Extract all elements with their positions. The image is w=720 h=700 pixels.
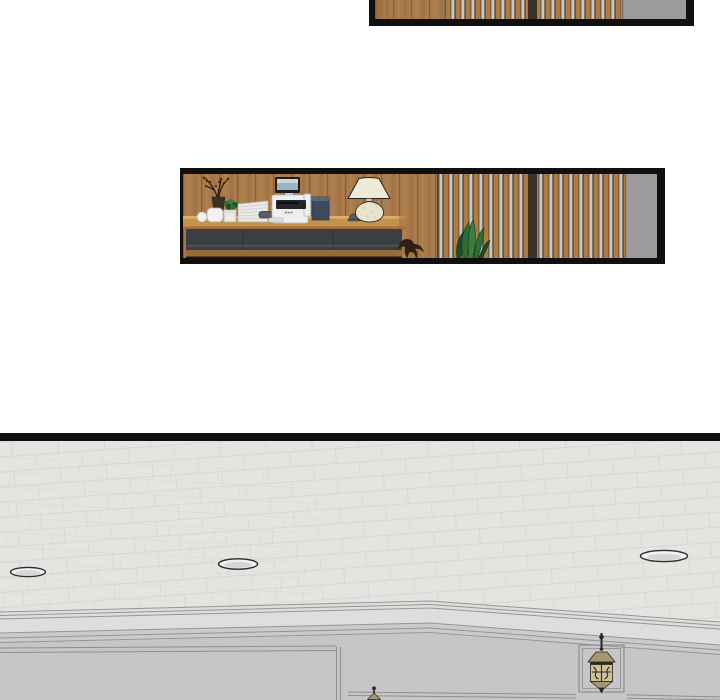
divider-post: [528, 174, 537, 258]
wood-wall: [375, 0, 444, 19]
top-strip-art: [375, 0, 686, 19]
stapler: [259, 212, 272, 219]
navy-box: [312, 197, 329, 220]
recessed-light: [11, 567, 46, 576]
reception-desk-art: [183, 174, 657, 258]
gray-pillar: [622, 0, 686, 19]
lobby-art: [0, 441, 720, 700]
panel-reception-desk: [180, 168, 665, 264]
white-bowl: [207, 208, 223, 222]
divider-post: [528, 0, 537, 19]
panel-top-strip: [369, 0, 694, 26]
recessed-light: [219, 559, 258, 569]
gray-pillar: [625, 174, 657, 258]
mini-plant: [224, 199, 239, 222]
panel-lobby-ceiling: [0, 433, 720, 700]
recessed-light: [641, 550, 688, 561]
white-cup: [197, 212, 207, 222]
comic-page: [0, 0, 720, 700]
